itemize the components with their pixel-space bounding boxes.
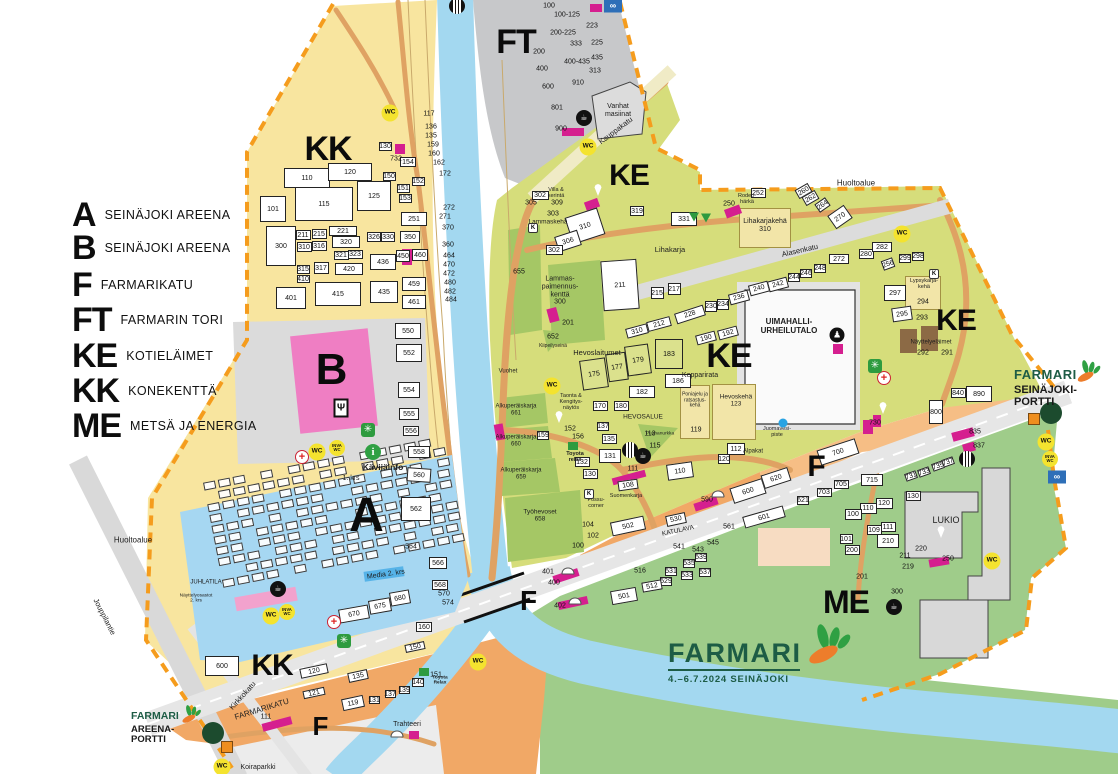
booth-320: 320 [332,236,360,248]
stage-bar [395,144,405,154]
booth-251: 251 [401,212,427,226]
booth-410: 410 [297,275,310,283]
booth-326: 326 [367,232,381,242]
stage-bar [409,731,419,739]
map-label: Alpakat [743,449,763,456]
booth-730: 730 [869,420,881,427]
coffee-icon: ☕ [576,110,592,126]
map-label: Työhevoset 658 [523,509,556,524]
wc-icon: WC [214,759,231,774]
booth-220: 220 [915,546,927,553]
booth-299: 299 [899,254,911,263]
map-label: Lypsykarja- kehä [910,278,938,290]
booth-154: 154 [400,157,416,167]
seinajoki-gate-label: FARMARI SEINÄJOKI- PORTTI [1014,368,1077,408]
kiosk-icon: K [929,269,939,279]
booth-900: 900 [555,126,567,133]
firstaid-icon: + [877,371,891,385]
booth-175: 175 [579,357,609,390]
booth-293: 293 [916,315,928,322]
zone-letter-F: F [807,452,824,482]
booth-125: 125 [357,181,391,211]
booth-211: 211 [899,553,910,560]
map-label: LUKIO [932,515,959,525]
booth-211: 211 [296,230,311,240]
wc-icon: WC [984,553,1001,570]
map-label: Näyttelyosastot 2. krs [180,594,213,605]
booth-537: 537 [699,568,711,577]
legend-code: B [72,231,96,265]
booth-120: 120 [299,663,328,679]
map-label: Lammas- paimennus- kenttä 300 [542,275,579,306]
booth-360: 360 [442,242,454,249]
booth-801: 801 [551,105,563,112]
booth-135: 135 [425,133,437,140]
booth-484: 484 [445,297,457,304]
zone-letter-FT: FT [496,25,536,59]
map-label: Hevoskehä 123 [720,394,753,409]
booth-282: 282 [872,242,892,252]
legend-code: FT [72,303,112,337]
booth-111: 111 [628,466,639,473]
booth-183: 183 [655,339,683,369]
booth-310: 310 [297,242,312,252]
stage-bar [590,4,602,12]
coffee-icon: ☕ [270,581,286,597]
booth-159: 159 [427,142,439,149]
map-label: Alkuperäiskarja 661 [495,403,536,416]
zone-letter-KE: KE [706,339,751,373]
booth-137: 137 [385,690,396,698]
booth-131: 131 [599,449,621,463]
booth-550: 550 [395,323,421,339]
legend-item-KE: KEKOTIELÄIMET [72,339,213,373]
booth-244: 244 [788,273,800,282]
farmari-leaf-icon [181,705,202,723]
booth-108: 108 [617,479,638,492]
kiosk-icon: K [528,223,538,233]
booth-305: 305 [525,200,537,207]
booth-120: 120 [718,454,730,464]
booth-100: 100 [572,543,584,550]
info-icon: i [365,444,381,460]
farmari-wordmark: FARMARI [1014,368,1077,381]
booth-420: 420 [335,263,363,275]
booth-302: 302 [532,191,549,200]
booth-315: 315 [297,265,310,274]
booth-621: 621 [797,496,809,505]
gate-square-icon [221,741,233,753]
booth-732: 732 [390,156,402,163]
booth-555: 555 [399,408,419,420]
booth-450: 450 [396,250,410,262]
booth-400-435: 400-435 [564,59,590,66]
booth-552: 552 [396,344,422,362]
legend-code: A [72,198,96,232]
booth-317: 317 [314,262,329,274]
booth-256: 256 [881,257,896,271]
booth-543: 543 [692,547,704,554]
booth-401: 401 [542,569,554,576]
booth-115: 115 [295,187,353,221]
booth-323: 323 [348,250,363,259]
booth-512: 512 [641,579,662,592]
toyota-relax-stand [568,442,578,450]
booth-502: 502 [610,516,646,537]
map-label: Lihakarjakehä 310 [743,218,787,234]
booth-130: 130 [379,142,392,151]
water-icon [779,419,788,428]
booth-600: 600 [205,656,239,676]
booth-300: 300 [266,226,296,266]
logo-rule [668,669,800,671]
map-label: Trahteeri [393,721,421,729]
booth-119: 119 [690,427,701,434]
restaurant-card-icon: Ψ [334,399,349,418]
booth-182: 182 [629,386,655,398]
legend-label: SEINÄJOKI AREENA [105,241,231,255]
booth-731: 731 [904,470,918,482]
coffee-icon: ☕ [886,599,902,615]
icecream-icon [938,526,945,538]
meet-icon: ✳ [361,423,375,437]
map-label: Näyttelyeläimet [910,340,951,347]
booth-272: 272 [829,254,849,264]
booth-402: 402 [554,603,566,610]
booth-120: 120 [876,498,893,509]
booth-234: 234 [717,299,729,310]
map-label: HEVOSALUE [623,413,663,420]
tree-icon [689,213,699,222]
booth-270: 270 [827,205,853,230]
booth-180: 180 [614,401,629,411]
booth-400: 400 [536,66,548,73]
booth-470: 470 [443,262,455,269]
booth-246: 246 [800,269,812,278]
booth-531: 531 [665,567,677,576]
booth-100-125: 100-125 [554,12,580,19]
foodtray-icon [391,731,404,738]
map-label: Toyota Relax [432,676,447,687]
booth-104: 104 [582,522,594,529]
wc-icon: WC [470,654,487,671]
booth-140: 140 [412,678,424,687]
booth-297: 297 [884,285,906,301]
booth-516: 516 [634,568,646,575]
booth-655: 655 [513,269,525,276]
zone-letter-KK: KK [251,651,292,681]
booth-172: 172 [439,171,451,178]
booth-150: 150 [383,172,396,181]
legend-label: FARMARIKATU [101,278,193,292]
foodtray-icon [712,491,725,498]
booth-137: 137 [597,422,609,431]
booth-601: 601 [742,505,786,528]
invawc-icon: INVA WC [1042,451,1058,467]
booth-680: 680 [389,589,411,606]
gate-name: AREENA- PORTTI [131,725,179,746]
booth-837: 837 [973,443,985,450]
stage-icon: ♟ [830,328,845,343]
booth-400: 400 [548,580,560,587]
legend-item-FT: FTFARMARIN TORI [72,303,223,337]
farmari-leaf-icon [806,624,852,664]
icecream-icon [595,184,602,196]
booth-501: 501 [610,587,638,605]
map-label: UIMAHALLI- URHEILUTALO [761,318,818,336]
booth-539: 539 [695,553,707,562]
map-label: 1. krs [342,475,359,483]
booth-600: 600 [542,84,554,91]
booth-150: 150 [404,641,425,653]
zone-letter-F: F [520,587,536,615]
booth-302: 302 [546,245,563,255]
booth-562: 562 [401,497,431,521]
booth-554: 554 [398,382,420,398]
booth-242: 242 [767,276,789,292]
booth-435: 435 [591,55,603,62]
booth-835: 835 [969,429,981,436]
booth-316: 316 [312,241,327,251]
legend-code: KK [72,374,119,408]
booth-533: 533 [681,571,693,580]
legend-item-F: FFARMARIKATU [72,268,193,302]
booth-131: 131 [369,696,380,704]
booth-211: 211 [600,259,639,311]
booth-200-225: 200-225 [550,30,576,37]
booth-574: 574 [442,600,454,607]
food-icon [959,451,975,467]
booth-110: 110 [666,461,694,480]
booth-170: 170 [593,401,608,411]
booth-201: 201 [562,320,574,327]
wc-icon: WC [544,378,561,395]
booth-401: 401 [276,287,306,309]
booth-530: 530 [665,512,687,527]
booth-570: 570 [438,591,450,598]
foodtray-icon [569,598,582,605]
map-label: Jouppilantie [91,597,117,636]
farmari-event-logo: FARMARI 4.–6.7.2024 SEINÄJOKI [668,640,802,685]
booth-541: 541 [673,544,685,551]
booth-272: 272 [443,205,455,212]
booth-313: 313 [589,68,601,75]
icecream-icon [880,402,887,414]
booth-228: 228 [674,304,706,324]
booth-102: 102 [587,533,599,540]
farmari-leaf-icon [1076,360,1101,382]
booth-319: 319 [630,206,644,216]
map-label: Suomenkarja [610,493,642,499]
booth-303: 303 [547,211,559,218]
map-label: Huoltoalue [114,537,152,546]
booth-298: 298 [912,252,924,261]
booth-459: 459 [402,277,426,291]
map-label: Kävijäinfo [363,463,404,473]
legend-label: KOTIELÄIMET [126,349,213,363]
legend-item-A: ASEINÄJOKI AREENA [72,198,230,232]
gate-name: SEINÄJOKI- PORTTI [1014,384,1077,408]
legend-code: ME [72,409,121,443]
legend-label: FARMARIN TORI [121,313,224,327]
legend-code: F [72,268,92,302]
map-label: Villa & kerintä [548,187,565,199]
booth-215: 215 [651,287,664,299]
booth-675: 675 [368,597,392,615]
legend-item-B: BSEINÄJOKI AREENA [72,231,230,265]
booth-560: 560 [407,467,432,483]
booth-110: 110 [860,503,877,514]
legend-item-KK: KKKONEKENTTÄ [72,374,217,408]
legend-item-ME: MEMETSÄ JA ENERGIA [72,409,257,443]
zone-letter-KE: KE [936,306,976,336]
booth-153: 153 [399,194,412,203]
map-label: Lihakarja [655,246,685,254]
booth-119: 119 [341,695,365,711]
farmari-fair-map: 1011101201151253002112152213103163203263… [0,0,1118,774]
map-label: Rodeo- härkä [738,193,756,205]
booth-101: 101 [840,534,853,544]
foodtray-icon [562,568,575,575]
invawc-icon: INVA WC [329,440,345,456]
booth-152: 152 [412,177,425,186]
booth-568: 568 [432,580,448,590]
meet-icon: ✳ [337,634,351,648]
show-ring [712,384,756,440]
booth-110: 110 [284,168,330,188]
booth-152: 152 [564,426,576,433]
farmari-wordmark: FARMARI [668,640,802,667]
booth-291: 291 [941,350,953,357]
wc-icon: WC [580,139,597,156]
booth-620: 620 [761,467,792,489]
map-label: Alkuperäiskarja 659 [500,467,541,480]
booth-460: 460 [412,249,428,261]
booth-100: 100 [543,3,555,10]
zone-letter-KK: KK [304,132,351,166]
booth-294: 294 [917,299,929,306]
booth-309: 309 [551,200,563,207]
bike-icon: ∞ [1048,471,1066,484]
wc-icon: WC [894,226,911,243]
bike-icon: ∞ [604,0,622,13]
booth-472: 472 [443,271,455,278]
booth-139: 139 [399,686,410,694]
booth-200: 200 [845,545,860,555]
booth-130: 130 [583,469,598,479]
booth-415: 415 [315,282,361,306]
booth-800: 800 [929,400,943,424]
map-label: Alkuperäiskarja 660 [495,434,536,447]
booth-250: 250 [723,201,735,208]
booth-271: 271 [439,214,451,221]
map-label: JUHLATILA [190,580,221,587]
booth-350: 350 [400,231,420,243]
firstaid-icon: + [295,450,309,464]
zone-letter-KE: KE [609,161,649,191]
booth-248: 248 [814,264,826,273]
booth-212: 212 [646,316,672,332]
booth-115: 115 [649,443,660,450]
booth-162: 162 [433,160,445,167]
wc-icon: WC [263,608,280,625]
booth-236: 236 [728,289,750,305]
map-label: Hevoslaitumet [573,349,621,357]
invawc-icon: INVA WC [279,604,295,620]
booth-558: 558 [408,446,430,458]
zone-letter-ME: ME [823,586,869,618]
booth-100: 100 [845,509,862,520]
booth-117: 117 [423,111,434,118]
zone-letter-B: B [316,348,347,392]
booth-136: 136 [425,124,437,131]
booth-111: 111 [881,522,896,532]
booth-561: 561 [723,524,735,531]
booth-156: 156 [572,434,584,441]
map-label: Juomavesi- piste [763,426,791,438]
booth-482: 482 [444,289,456,296]
gate-square-icon [1028,413,1040,425]
booth-566: 566 [429,557,447,569]
booth-910: 910 [572,80,584,87]
stage-bar [833,344,843,354]
areena-gate-label: FARMARI AREENA- PORTTI [131,711,179,745]
map-label: Koiraparkki [240,764,275,772]
booth-219: 219 [902,564,914,571]
meet-icon: ✳ [868,359,882,373]
booth-250: 250 [942,556,954,563]
map-label: Vuohet [499,369,518,376]
booth-295: 295 [891,306,913,323]
booth-300: 300 [891,589,903,596]
map-label: Kiipeilyseinä [539,344,567,350]
booth-435: 435 [370,281,398,303]
farmari-wordmark: FARMARI [131,711,179,722]
map-label: Kauppakatu [597,116,634,147]
booth-333: 333 [570,41,582,48]
booth-310: 310 [625,323,649,338]
booth-703: 703 [817,488,832,497]
booth-464: 464 [443,253,455,260]
icecream-icon [556,411,563,423]
booth-101: 101 [260,196,286,222]
booth-159: 159 [537,431,549,440]
booth-564: 564 [405,544,417,551]
booth-201: 201 [856,574,868,581]
legend-label: SEINÄJOKI AREENA [105,208,231,222]
map-label: Taonta & Kengitys- näytös [560,393,583,411]
booth-292: 292 [917,350,929,357]
booth-160: 160 [428,151,440,158]
stage-bar [546,307,559,323]
booth-217: 217 [668,283,681,295]
booth-135: 135 [602,434,617,444]
kiosk-icon: K [584,489,594,499]
map-label: Toyota relax [566,451,584,463]
booth-535: 535 [683,559,695,568]
tree-icon [701,214,711,223]
booth-545: 545 [707,540,719,547]
booth-210: 210 [877,534,899,548]
booth-179: 179 [624,343,652,376]
booth-735: 735 [931,460,945,472]
booth-135: 135 [347,669,369,683]
wc-icon: WC [309,444,326,461]
wc-icon: WC [1038,434,1055,451]
booth-556: 556 [403,426,419,436]
booth-715: 715 [861,474,883,486]
booth-215: 215 [312,229,327,239]
